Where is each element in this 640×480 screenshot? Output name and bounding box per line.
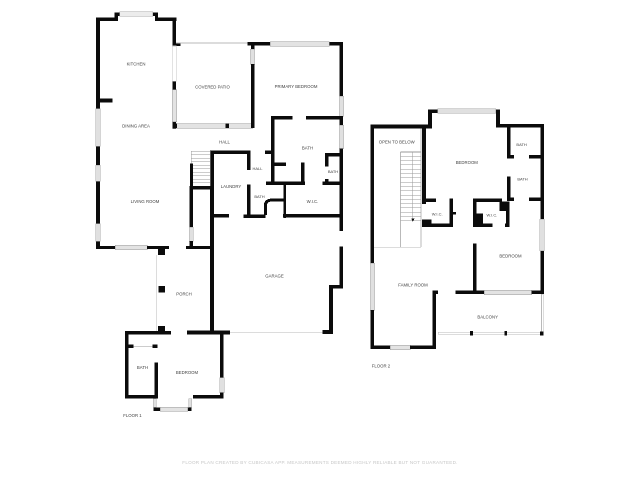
svg-text:BATH: BATH: [517, 177, 527, 182]
svg-text:LIVING ROOM: LIVING ROOM: [131, 199, 160, 204]
svg-text:W.I.C.: W.I.C.: [432, 212, 443, 217]
svg-text:FLOOR 2: FLOOR 2: [372, 364, 391, 369]
svg-text:FLOOR 1: FLOOR 1: [123, 413, 142, 418]
svg-text:HALL: HALL: [219, 140, 230, 145]
svg-text:DINING AREA: DINING AREA: [122, 124, 150, 129]
svg-text:HALL: HALL: [252, 166, 263, 171]
svg-text:BATH: BATH: [328, 169, 338, 174]
svg-text:BATH: BATH: [516, 142, 526, 147]
svg-text:GARAGE: GARAGE: [265, 274, 284, 279]
svg-text:BATH: BATH: [137, 365, 148, 370]
svg-text:BALCONY: BALCONY: [477, 315, 498, 320]
svg-text:BATH: BATH: [302, 146, 313, 151]
svg-text:FLOOR PLAN CREATED BY CUBICASA: FLOOR PLAN CREATED BY CUBICASA APP. MEAS…: [182, 460, 457, 465]
svg-text:BATH: BATH: [254, 194, 264, 199]
svg-text:LAUNDRY: LAUNDRY: [221, 184, 242, 189]
svg-text:COVERED PATIO: COVERED PATIO: [195, 85, 230, 90]
svg-text:W.I.C.: W.I.C.: [307, 199, 319, 204]
svg-text:OPEN TO BELOW: OPEN TO BELOW: [379, 140, 416, 145]
svg-text:BEDROOM: BEDROOM: [456, 160, 479, 165]
svg-text:W.I.C.: W.I.C.: [486, 213, 497, 218]
svg-text:KITCHEN: KITCHEN: [127, 61, 146, 66]
svg-text:BEDROOM: BEDROOM: [499, 253, 522, 258]
svg-text:FAMILY ROOM: FAMILY ROOM: [398, 283, 428, 288]
svg-text:PRIMARY BEDROOM: PRIMARY BEDROOM: [275, 84, 318, 89]
svg-text:BEDROOM: BEDROOM: [176, 370, 199, 375]
svg-text:PORCH: PORCH: [176, 291, 192, 296]
